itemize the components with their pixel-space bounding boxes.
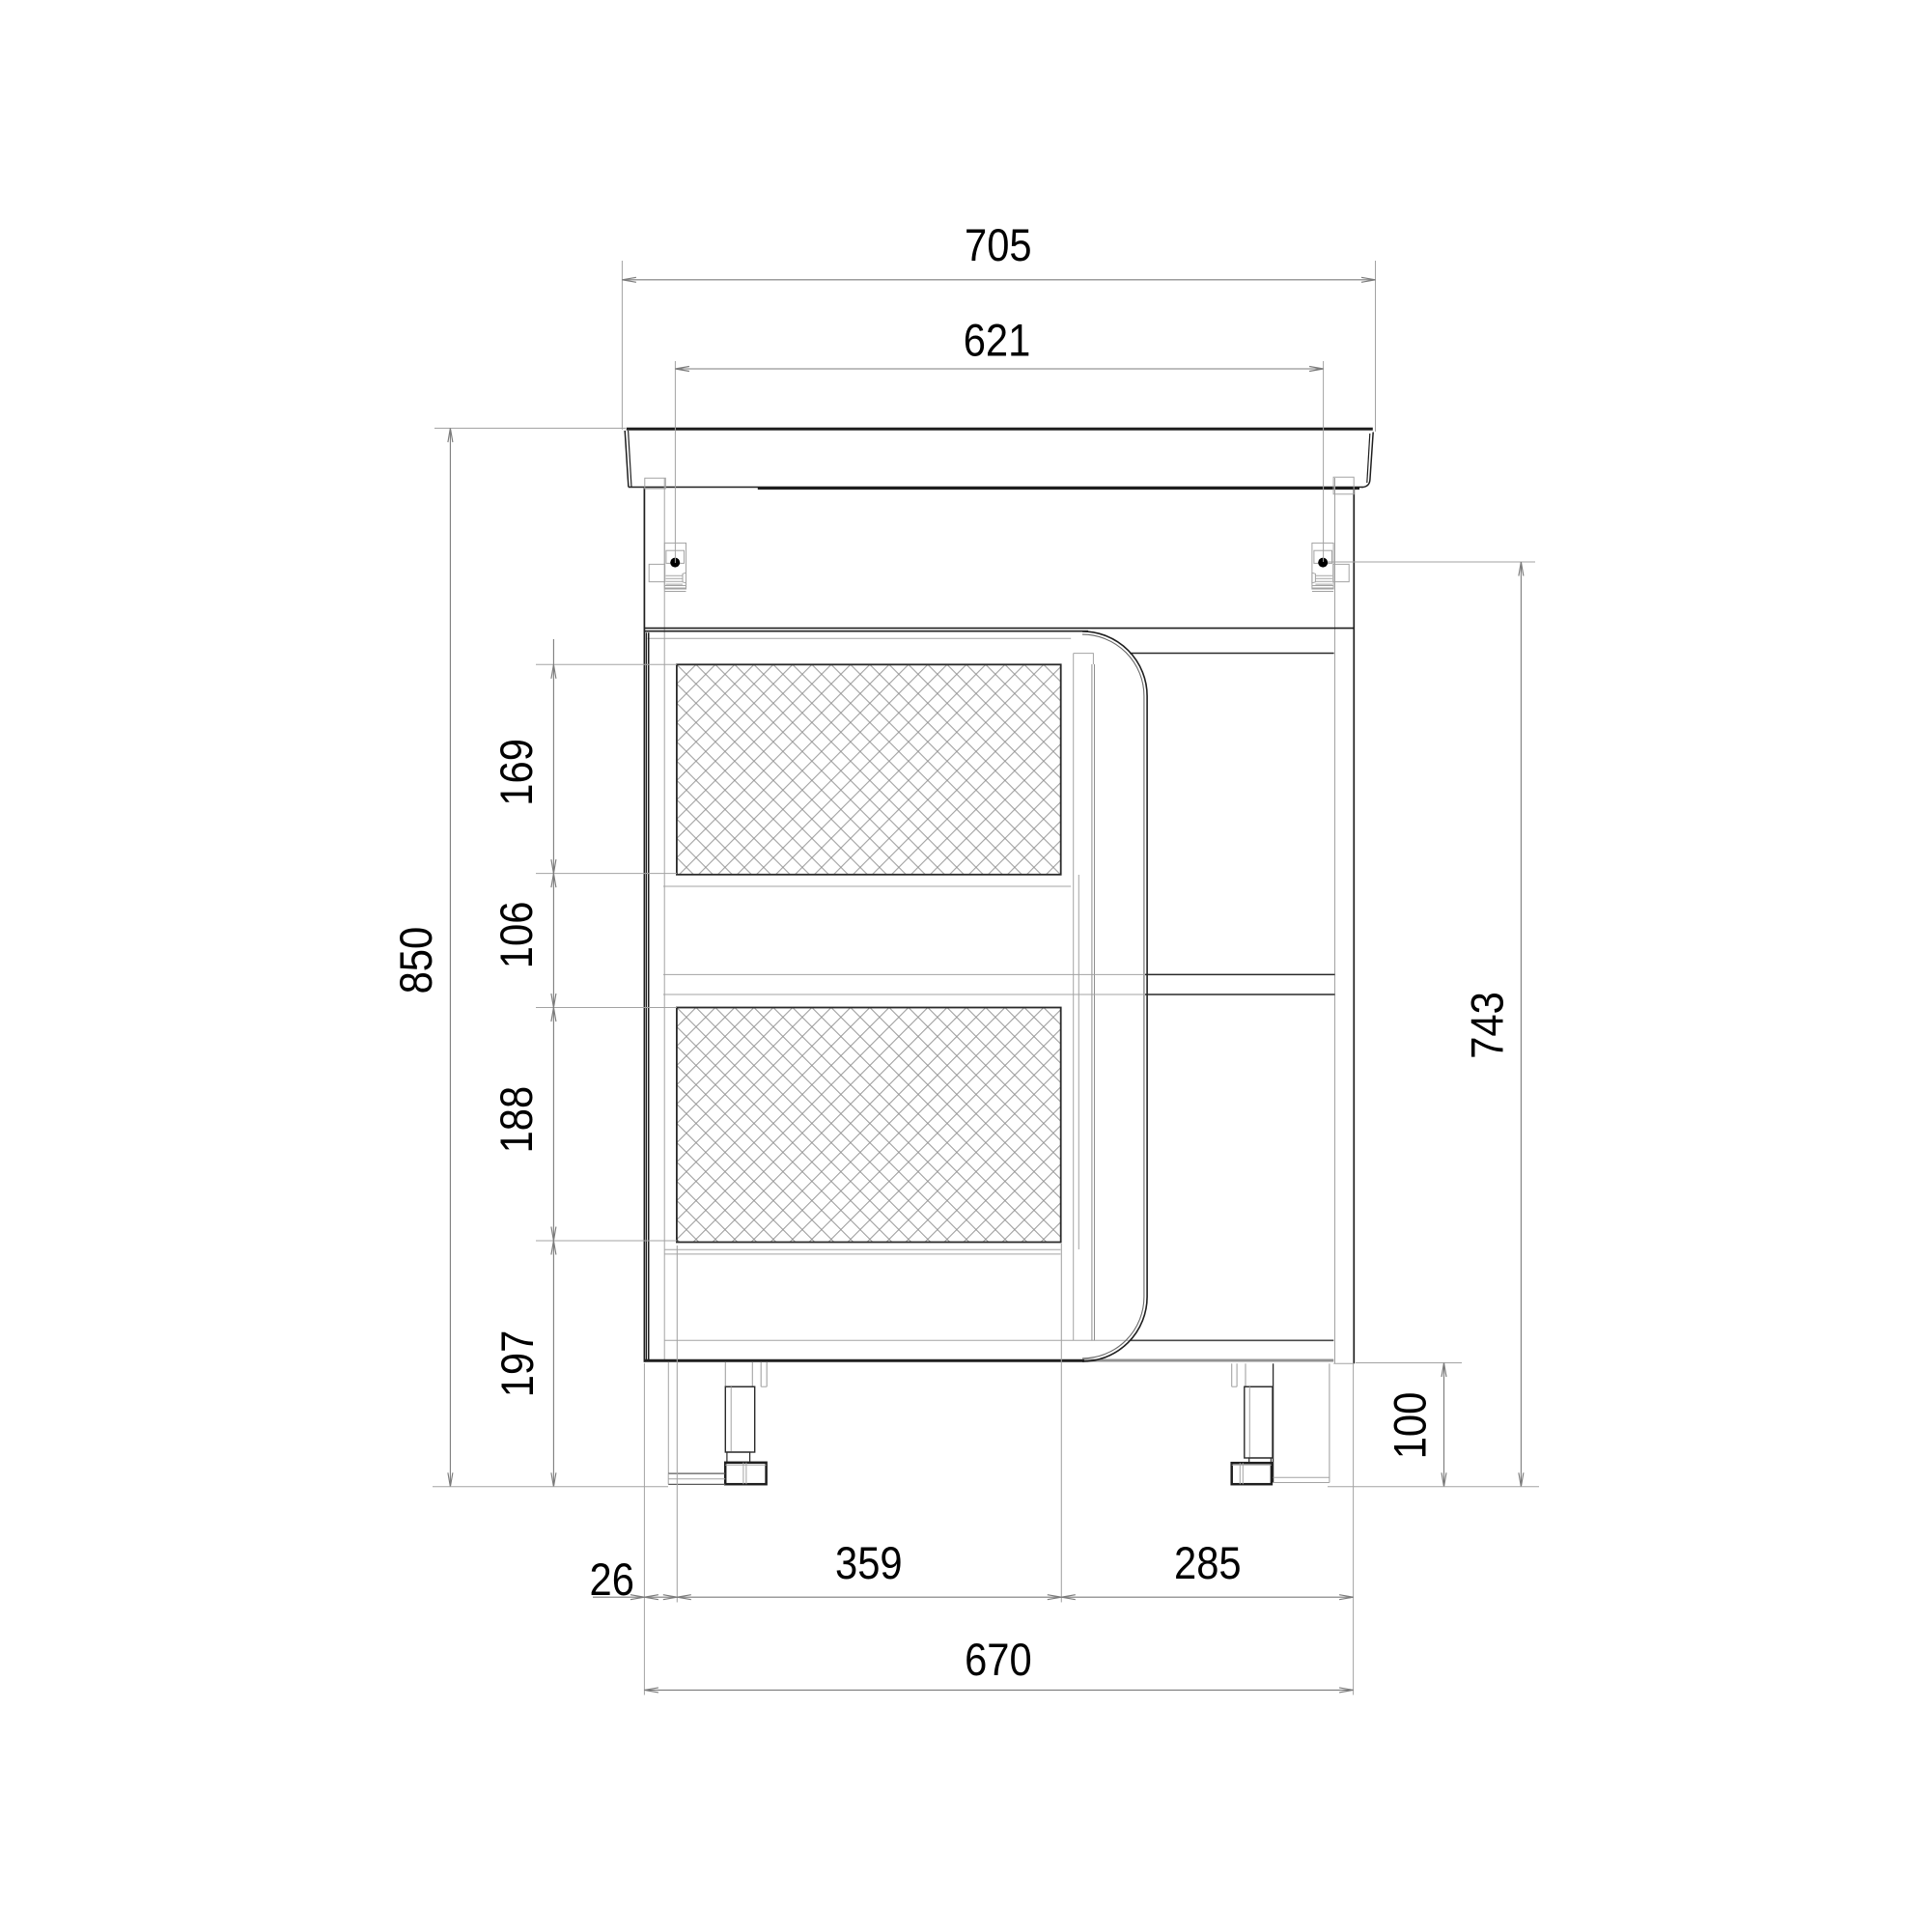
svg-text:26: 26 [590, 1554, 634, 1606]
svg-text:188: 188 [491, 1086, 543, 1154]
svg-text:106: 106 [491, 902, 543, 969]
svg-text:705: 705 [965, 220, 1032, 271]
svg-text:621: 621 [964, 315, 1031, 366]
svg-text:743: 743 [1462, 992, 1513, 1059]
svg-text:850: 850 [391, 927, 442, 994]
svg-text:197: 197 [492, 1330, 544, 1398]
svg-text:100: 100 [1386, 1392, 1437, 1460]
svg-text:285: 285 [1174, 1538, 1242, 1589]
svg-text:169: 169 [491, 739, 543, 806]
svg-text:670: 670 [965, 1635, 1032, 1686]
svg-text:359: 359 [835, 1538, 903, 1589]
